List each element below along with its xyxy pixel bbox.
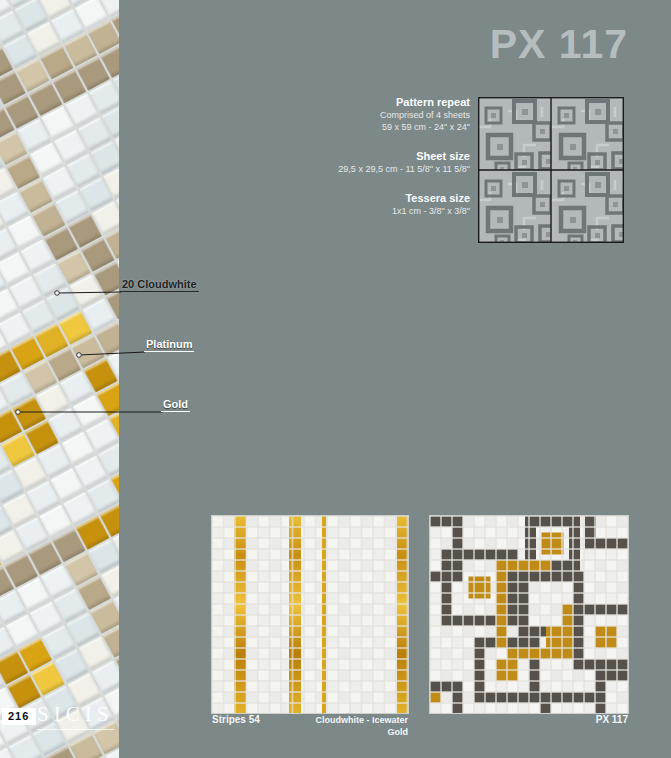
caption-px117: PX 117 <box>430 714 628 725</box>
label-gold: Gold <box>161 398 190 412</box>
mosaic-photo-tiles <box>0 0 119 758</box>
brand-logo: SICIS <box>37 702 114 730</box>
page-title: PX 117 <box>490 24 628 65</box>
spec-line: Comprised of 4 sheets <box>338 109 470 121</box>
spec-title: Sheet size <box>338 150 470 163</box>
swatch-stripes-54 <box>212 516 408 713</box>
swatch-px117 <box>430 516 628 713</box>
spec-title: Pattern repeat <box>338 96 470 109</box>
mosaic-photo <box>0 0 119 758</box>
caption-colorway-line1: Cloudwhite - Icewater <box>212 714 408 726</box>
pattern-repeat-diagram <box>478 97 624 243</box>
caption-colorways: Cloudwhite - Icewater Gold <box>212 714 408 738</box>
spec-line: 59 x 59 cm - 24" x 24" <box>338 121 470 133</box>
spec-pattern-repeat: Pattern repeat Comprised of 4 sheets 59 … <box>338 96 470 133</box>
label-platinum: Platinum <box>144 338 194 352</box>
spec-sheet-size: Sheet size 29,5 x 29,5 cm - 11 5/8" x 11… <box>338 150 470 175</box>
spec-line: 1x1 cm - 3/8" x 3/8" <box>338 205 470 217</box>
caption-colorway-line2: Gold <box>212 726 408 738</box>
spec-title: Tessera size <box>338 192 470 205</box>
specs-panel: Pattern repeat Comprised of 4 sheets 59 … <box>338 96 470 234</box>
spec-tessera-size: Tessera size 1x1 cm - 3/8" x 3/8" <box>338 192 470 217</box>
page-number: 216 <box>2 708 36 725</box>
spec-line: 29,5 x 29,5 cm - 11 5/8" x 11 5/8" <box>338 163 470 175</box>
label-cloudwhite: 20 Cloudwhite <box>120 278 199 292</box>
